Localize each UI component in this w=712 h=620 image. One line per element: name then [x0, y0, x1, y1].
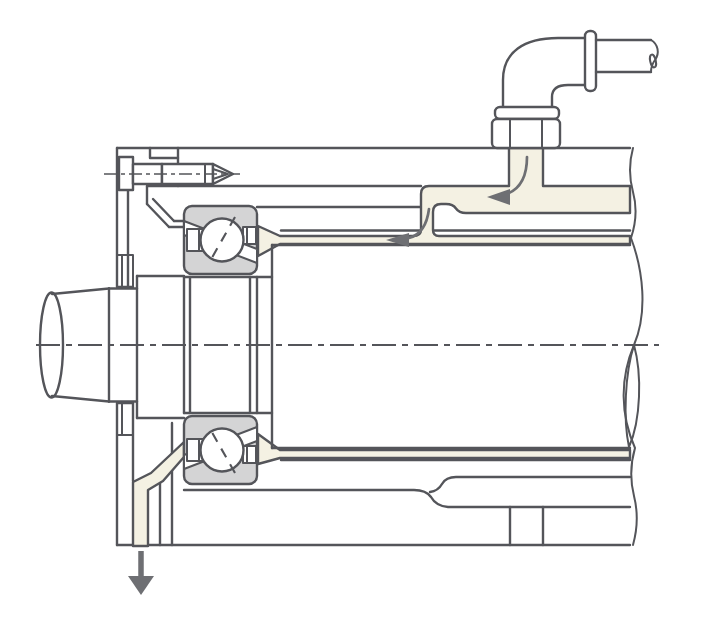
fitting-hex-nut	[492, 119, 560, 148]
diagram-canvas	[0, 0, 712, 620]
upper-bearing	[184, 206, 257, 274]
shaft-line	[137, 276, 184, 418]
seal-carrier-lower	[117, 403, 133, 435]
bearing-lubrication-cross-section	[0, 0, 712, 620]
drain-arrow-icon	[128, 551, 154, 595]
housing-line	[430, 477, 630, 492]
housing-line	[184, 490, 630, 507]
housing-line	[117, 403, 133, 545]
drain-plug-bore	[510, 507, 543, 545]
cage-pocket	[243, 446, 256, 463]
labyrinth-seal-upper	[147, 199, 174, 227]
elbow-inner	[552, 85, 586, 109]
oil-inlet-fitting	[492, 31, 658, 148]
housing-line	[150, 148, 178, 158]
shaft-body	[272, 245, 630, 448]
seal-carrier-upper	[117, 255, 133, 287]
pipe-break-end	[649, 54, 657, 68]
labyrinth-seal-upper	[169, 221, 184, 227]
fitting-collar	[495, 107, 559, 119]
lower-bearing	[184, 416, 257, 484]
pipe-flange	[585, 31, 596, 91]
drain-channel	[133, 442, 184, 546]
cage-pocket	[243, 227, 256, 244]
supply-pipe	[596, 40, 651, 72]
upper-oil-channel	[258, 148, 630, 256]
elbow-outer	[503, 38, 586, 109]
